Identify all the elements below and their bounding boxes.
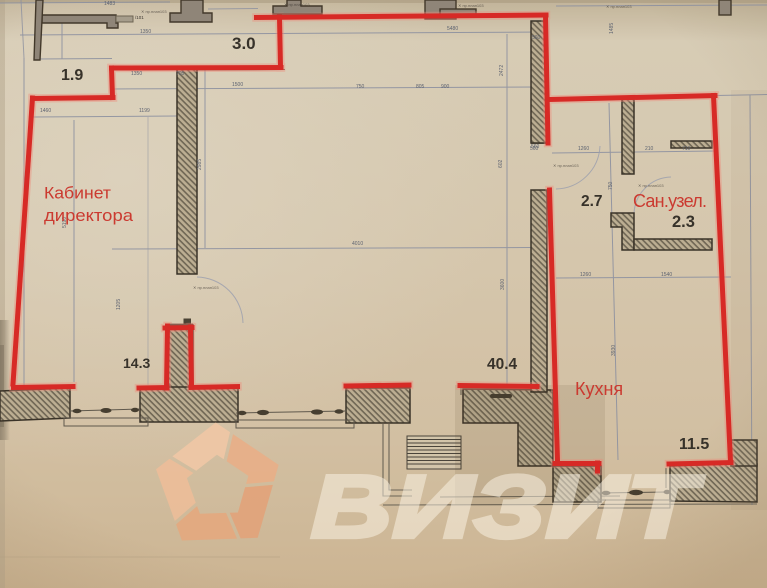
svg-text:2472: 2472: [499, 65, 505, 76]
svg-text:1483: 1483: [104, 1, 115, 7]
svg-text:Сан.узел.: Сан.узел.: [633, 191, 707, 211]
svg-text:Кухня: Кухня: [575, 379, 623, 399]
svg-text:560: 560: [531, 144, 540, 150]
svg-text:1500: 1500: [232, 82, 243, 88]
svg-text:✕ пр.план103: ✕ пр.план103: [141, 9, 167, 14]
svg-text:560: 560: [532, 35, 541, 41]
svg-text:4010: 4010: [352, 241, 363, 247]
svg-text:1540: 1540: [661, 272, 672, 278]
svg-text:5480: 5480: [447, 26, 458, 32]
svg-text:1199: 1199: [139, 108, 150, 114]
svg-text:/101: /101: [135, 15, 144, 20]
svg-text:3.0: 3.0: [232, 34, 256, 53]
svg-text:2.7: 2.7: [581, 193, 603, 210]
svg-text:750: 750: [608, 181, 614, 190]
svg-text:✕ пр.план103: ✕ пр.план103: [193, 285, 219, 290]
svg-text:✕ пр.план103: ✕ пр.план103: [606, 4, 632, 9]
svg-text:1205: 1205: [116, 299, 122, 310]
svg-text:602: 602: [498, 159, 504, 168]
svg-text:1350: 1350: [140, 29, 151, 35]
svg-text:2985: 2985: [197, 159, 203, 170]
svg-text:710: 710: [682, 146, 691, 152]
svg-text:1.9: 1.9: [61, 67, 83, 84]
svg-text:11.5: 11.5: [679, 436, 709, 453]
svg-text:Кабинет: Кабинет: [44, 185, 111, 203]
svg-text:750: 750: [356, 84, 365, 90]
svg-text:210: 210: [645, 146, 654, 152]
svg-text:1485: 1485: [609, 23, 615, 34]
svg-text:900: 900: [441, 84, 450, 90]
svg-text:ВИЗИТ: ВИЗИТ: [311, 459, 704, 557]
svg-text:директора: директора: [44, 207, 134, 225]
svg-text:✕ пр.план103: ✕ пр.план103: [458, 3, 484, 8]
svg-text:1350: 1350: [131, 71, 142, 77]
svg-text:805: 805: [416, 84, 425, 90]
svg-text:3930: 3930: [611, 345, 617, 356]
svg-text:2.3: 2.3: [672, 213, 695, 231]
svg-text:✕ пр.план103: ✕ пр.план103: [638, 183, 664, 188]
svg-text:3600: 3600: [500, 279, 506, 290]
svg-text:1460: 1460: [40, 108, 51, 114]
svg-text:✕ пр.план103: ✕ пр.план103: [284, 2, 310, 7]
svg-text:40.4: 40.4: [487, 356, 518, 373]
svg-text:✕ пр.план103: ✕ пр.план103: [553, 163, 579, 168]
svg-text:1260: 1260: [580, 272, 591, 278]
svg-text:705: 705: [176, 71, 185, 77]
svg-text:1260: 1260: [578, 146, 589, 152]
svg-text:14.3: 14.3: [123, 355, 150, 371]
